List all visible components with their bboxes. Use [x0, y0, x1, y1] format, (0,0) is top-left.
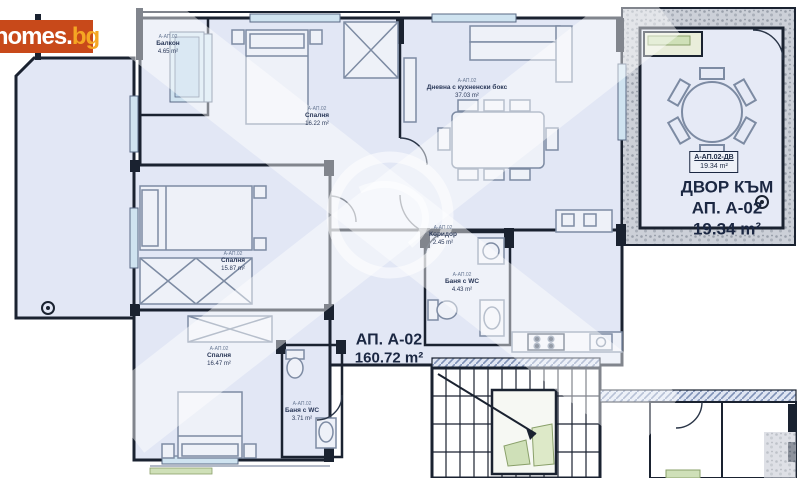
- logo-text-main: homes.: [0, 25, 72, 49]
- yard-label: ДВОР КЪМ АП. А-02 19.34 m²: [681, 177, 774, 240]
- yard-tag-box: А-АП.02-ДВ 19.34 m²: [689, 151, 738, 173]
- yard-tag-area: 19.34 m²: [694, 162, 733, 171]
- logo-text-suffix: bg: [72, 25, 99, 49]
- yard-tag-code: А-АП.02-ДВ: [694, 153, 733, 162]
- yard-label-line3: 19.34 m²: [681, 219, 774, 240]
- yard-label-line2: АП. А-02: [681, 198, 774, 219]
- apartment-area: 160.72 m²: [355, 350, 423, 367]
- homes-bg-logo[interactable]: homes.bg: [0, 20, 93, 53]
- apartment-number: АП. А-02: [355, 332, 423, 350]
- floor-plan-page: homes.bg А-АП.02 Балкон 4.65 m² А-АП.02 …: [0, 0, 800, 478]
- yard-label-line1: ДВОР КЪМ: [681, 177, 774, 198]
- apartment-label: АП. А-02 160.72 m²: [355, 332, 423, 367]
